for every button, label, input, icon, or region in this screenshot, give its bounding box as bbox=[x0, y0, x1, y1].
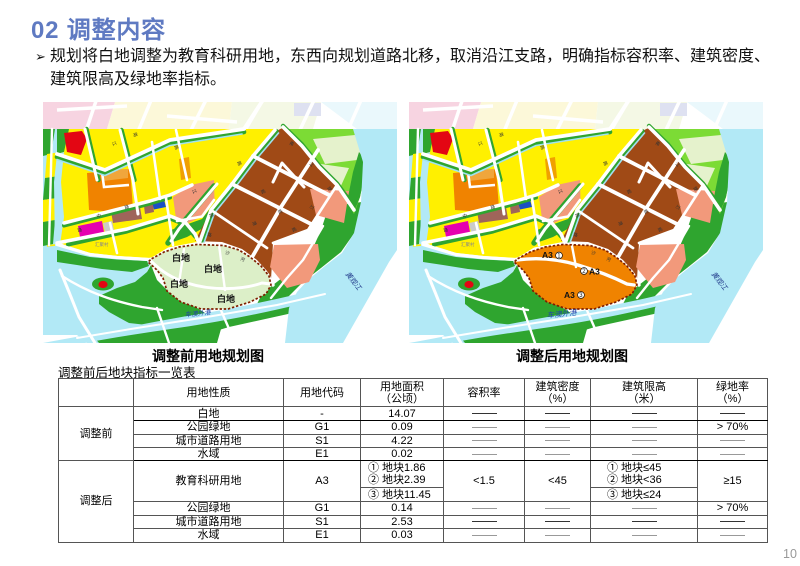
svg-text:白地: 白地 bbox=[172, 252, 190, 263]
svg-text:白地: 白地 bbox=[170, 278, 188, 289]
svg-text:白地: 白地 bbox=[217, 293, 235, 304]
svg-text:A3: A3 bbox=[589, 267, 600, 277]
svg-text:A3: A3 bbox=[542, 250, 553, 260]
svg-text:汇聚村: 汇聚村 bbox=[95, 241, 109, 248]
svg-text:白地: 白地 bbox=[204, 263, 222, 274]
svg-text:汇聚村: 汇聚村 bbox=[461, 241, 475, 248]
svg-text:A3: A3 bbox=[564, 290, 575, 300]
